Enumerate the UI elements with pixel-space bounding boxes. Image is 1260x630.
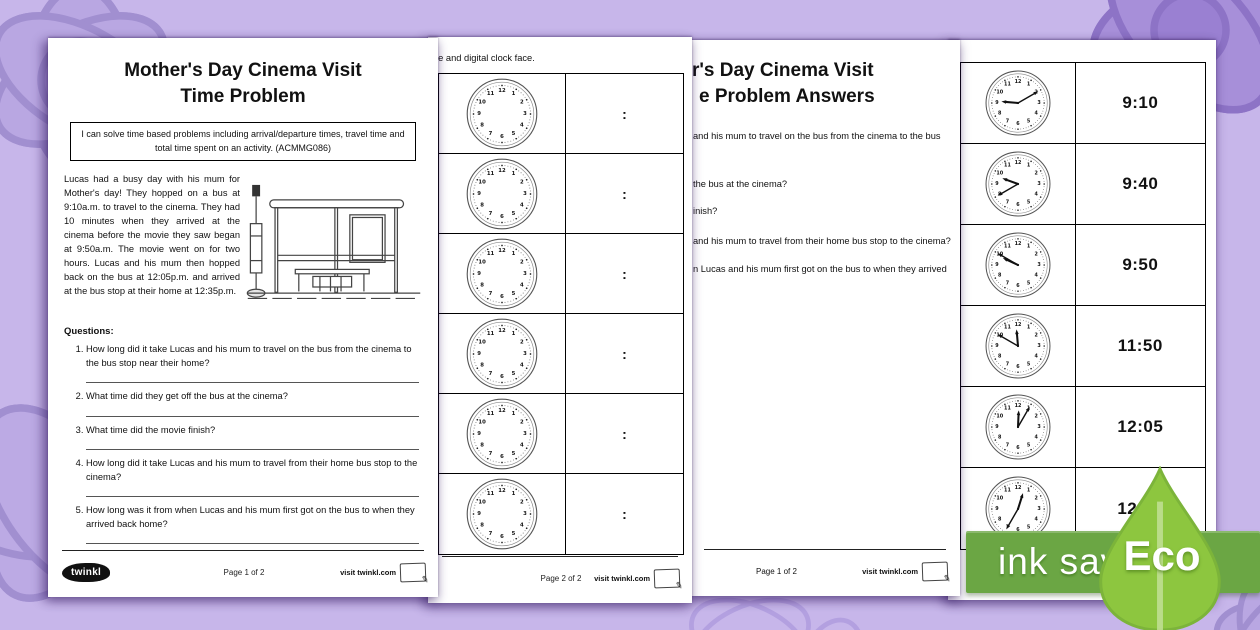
table-row: 123456789101112 9:10 xyxy=(961,63,1205,144)
question-item: How long did it take Lucas and his mum t… xyxy=(86,457,422,497)
svg-text:3: 3 xyxy=(523,351,527,357)
digital-clock-colon: : xyxy=(566,234,683,313)
question-item: How long did it take Lucas and his mum t… xyxy=(86,343,422,383)
svg-text:12: 12 xyxy=(498,408,506,414)
svg-text:12: 12 xyxy=(498,88,506,94)
svg-text:4: 4 xyxy=(1034,111,1038,117)
answer-blank-line[interactable] xyxy=(86,404,419,417)
svg-text:3: 3 xyxy=(523,191,527,197)
svg-text:5: 5 xyxy=(512,370,516,376)
svg-text:1: 1 xyxy=(1027,163,1031,169)
answer-line-fragment: and his mum to travel on the bus from th… xyxy=(693,131,960,141)
table-row: 123456789101112 : xyxy=(439,74,683,154)
svg-text:10: 10 xyxy=(996,89,1003,95)
page-title: Mother's Day Cinema Visit Time Problem xyxy=(64,58,422,110)
svg-text:8: 8 xyxy=(998,435,1002,441)
learning-objective-box: I can solve time based problems includin… xyxy=(70,122,416,161)
svg-text:4: 4 xyxy=(1034,273,1038,279)
blank-analog-clock: 123456789101112 xyxy=(465,317,539,391)
analog-clock: 123456789101112 xyxy=(984,312,1052,380)
svg-text:7: 7 xyxy=(489,130,493,136)
svg-text:4: 4 xyxy=(520,202,524,208)
blank-clock-table: 123456789101112 : 123456789101112 : 1234… xyxy=(438,73,684,555)
answers-text-page: r's Day Cinema Visit e Problem Answers a… xyxy=(690,40,960,596)
svg-text:8: 8 xyxy=(480,122,484,128)
svg-text:8: 8 xyxy=(480,442,484,448)
answer-line-fragment: the bus at the cinema? xyxy=(693,179,960,189)
svg-text:8: 8 xyxy=(480,282,484,288)
svg-text:2: 2 xyxy=(1034,332,1037,338)
svg-text:3: 3 xyxy=(1037,100,1040,106)
page-footer: Page 1 of 2 visit twinkl.com ✎ xyxy=(704,558,948,584)
svg-text:9: 9 xyxy=(995,343,999,349)
page-number: Page 1 of 2 xyxy=(756,567,797,576)
svg-text:11: 11 xyxy=(1004,244,1011,250)
svg-text:3: 3 xyxy=(1037,424,1040,430)
blank-analog-clock: 123456789101112 xyxy=(465,397,539,471)
svg-text:1: 1 xyxy=(512,491,516,497)
answer-line-fragment: inish? xyxy=(693,206,960,216)
svg-text:7: 7 xyxy=(489,370,493,376)
svg-text:5: 5 xyxy=(1027,524,1031,530)
svg-text:4: 4 xyxy=(1034,354,1038,360)
svg-text:5: 5 xyxy=(1027,361,1031,367)
svg-text:11: 11 xyxy=(487,251,495,257)
svg-text:12: 12 xyxy=(1014,322,1021,328)
svg-text:2: 2 xyxy=(1034,495,1037,501)
svg-text:6: 6 xyxy=(500,373,504,379)
svg-text:9: 9 xyxy=(477,351,481,357)
answer-line-fragment: and his mum to travel from their home bu… xyxy=(693,236,960,246)
svg-text:5: 5 xyxy=(512,290,516,296)
analog-clock: 123456789101112 xyxy=(984,393,1052,461)
svg-text:1: 1 xyxy=(1027,487,1031,493)
svg-text:8: 8 xyxy=(998,516,1002,522)
digital-clock-colon: : xyxy=(566,314,683,393)
questions-heading: Questions: xyxy=(64,326,422,337)
table-row: 123456789101112 9:40 xyxy=(961,144,1205,225)
svg-text:10: 10 xyxy=(996,413,1003,419)
visit-link[interactable]: visit twinkl.com xyxy=(862,567,918,576)
svg-text:12: 12 xyxy=(498,488,506,494)
svg-text:2: 2 xyxy=(520,259,524,265)
svg-text:5: 5 xyxy=(512,210,516,216)
svg-text:12: 12 xyxy=(498,328,506,334)
svg-text:11: 11 xyxy=(1004,406,1011,412)
svg-text:12: 12 xyxy=(498,248,506,254)
svg-text:9: 9 xyxy=(995,262,999,268)
svg-text:7: 7 xyxy=(1006,361,1009,367)
svg-text:3: 3 xyxy=(523,431,527,437)
svg-text:10: 10 xyxy=(478,419,486,425)
svg-text:4: 4 xyxy=(1034,435,1038,441)
table-row: 123456789101112 : xyxy=(439,394,683,474)
svg-text:7: 7 xyxy=(1006,442,1009,448)
table-row: 123456789101112 12:05 xyxy=(961,387,1205,468)
footer-divider xyxy=(704,549,946,550)
svg-text:1: 1 xyxy=(1027,325,1031,331)
svg-text:6: 6 xyxy=(1016,445,1020,451)
svg-text:4: 4 xyxy=(520,282,524,288)
question-item: What time did they get off the bus at th… xyxy=(86,390,422,416)
svg-text:9: 9 xyxy=(995,181,999,187)
svg-text:12: 12 xyxy=(1014,241,1021,247)
svg-text:9: 9 xyxy=(477,431,481,437)
svg-text:2: 2 xyxy=(520,99,524,105)
digital-clock-colon: : xyxy=(566,154,683,233)
svg-text:7: 7 xyxy=(489,210,493,216)
svg-text:5: 5 xyxy=(512,130,516,136)
svg-text:10: 10 xyxy=(478,179,486,185)
svg-text:3: 3 xyxy=(523,511,527,517)
svg-text:6: 6 xyxy=(1016,121,1020,127)
digital-time: 9:40 xyxy=(1076,144,1205,224)
svg-text:12: 12 xyxy=(498,168,506,174)
svg-text:3: 3 xyxy=(1037,343,1040,349)
svg-text:11: 11 xyxy=(1004,325,1011,331)
svg-text:9: 9 xyxy=(477,111,481,117)
svg-text:8: 8 xyxy=(998,273,1002,279)
svg-text:4: 4 xyxy=(1034,516,1038,522)
svg-text:4: 4 xyxy=(520,122,524,128)
svg-text:8: 8 xyxy=(998,354,1002,360)
svg-text:5: 5 xyxy=(512,531,516,537)
svg-text:11: 11 xyxy=(1004,163,1011,169)
problem-page: Mother's Day Cinema Visit Time Problem I… xyxy=(48,38,438,597)
page-footer: Page 2 of 2 visit twinkl.com ✎ xyxy=(442,565,680,591)
svg-text:12: 12 xyxy=(1014,160,1021,166)
answer-blank-line[interactable] xyxy=(86,437,419,450)
svg-text:10: 10 xyxy=(478,339,486,345)
svg-text:12: 12 xyxy=(1014,79,1021,85)
visit-link[interactable]: visit twinkl.com xyxy=(340,568,396,577)
visit-link[interactable]: visit twinkl.com xyxy=(594,574,650,583)
svg-text:5: 5 xyxy=(1027,280,1031,286)
svg-text:3: 3 xyxy=(1037,262,1040,268)
svg-text:2: 2 xyxy=(1034,413,1037,419)
svg-text:1: 1 xyxy=(512,411,516,417)
svg-text:11: 11 xyxy=(487,91,495,97)
svg-text:5: 5 xyxy=(1027,118,1031,124)
svg-text:7: 7 xyxy=(1006,199,1009,205)
svg-text:11: 11 xyxy=(1004,82,1011,88)
blank-clocks-page: ue and digital clock face. 1234567891011… xyxy=(428,37,692,603)
instruction-fragment: ue and digital clock face. xyxy=(433,53,535,63)
blank-analog-clock: 123456789101112 xyxy=(465,477,539,551)
svg-text:1: 1 xyxy=(512,91,516,97)
svg-text:2: 2 xyxy=(520,500,524,506)
svg-text:10: 10 xyxy=(478,99,486,105)
svg-text:5: 5 xyxy=(1027,442,1031,448)
eco-label: Eco xyxy=(1102,532,1222,580)
svg-text:9: 9 xyxy=(477,191,481,197)
svg-text:4: 4 xyxy=(520,522,524,528)
svg-text:7: 7 xyxy=(1006,118,1009,124)
svg-text:10: 10 xyxy=(996,495,1003,501)
svg-text:11: 11 xyxy=(487,411,495,417)
svg-text:4: 4 xyxy=(520,442,524,448)
answer-blank-line[interactable] xyxy=(86,484,419,497)
table-row: 123456789101112 9:50 xyxy=(961,225,1205,306)
svg-text:9: 9 xyxy=(477,511,481,517)
digital-time: 9:10 xyxy=(1076,63,1205,143)
svg-text:5: 5 xyxy=(512,450,516,456)
svg-text:6: 6 xyxy=(1016,364,1020,370)
problem-story: Lucas had a busy day with his mum for Mo… xyxy=(64,173,240,316)
blank-analog-clock: 123456789101112 xyxy=(465,237,539,311)
svg-text:6: 6 xyxy=(500,534,504,540)
svg-text:6: 6 xyxy=(500,293,504,299)
svg-text:7: 7 xyxy=(1006,280,1009,286)
svg-text:12: 12 xyxy=(1014,484,1021,490)
table-row: 123456789101112 11:50 xyxy=(961,306,1205,387)
svg-text:7: 7 xyxy=(489,531,493,537)
svg-text:6: 6 xyxy=(1016,283,1020,289)
svg-text:1: 1 xyxy=(512,251,516,257)
svg-text:9: 9 xyxy=(477,271,481,277)
svg-text:8: 8 xyxy=(480,522,484,528)
svg-text:3: 3 xyxy=(523,271,527,277)
svg-text:1: 1 xyxy=(512,331,516,337)
svg-text:7: 7 xyxy=(489,290,493,296)
svg-text:11: 11 xyxy=(487,491,495,497)
svg-text:2: 2 xyxy=(1034,251,1037,257)
analog-clock: 123456789101112 xyxy=(984,231,1052,299)
digital-clock-colon: : xyxy=(566,74,683,153)
svg-text:12: 12 xyxy=(1014,403,1021,409)
digital-clock-colon: : xyxy=(566,394,683,473)
blank-analog-clock: 123456789101112 xyxy=(465,77,539,151)
blank-analog-clock: 123456789101112 xyxy=(465,157,539,231)
svg-text:1: 1 xyxy=(1027,82,1031,88)
svg-text:2: 2 xyxy=(1034,170,1037,176)
table-row: 123456789101112 : xyxy=(439,234,683,314)
svg-text:11: 11 xyxy=(1004,487,1011,493)
questions-list: How long did it take Lucas and his mum t… xyxy=(86,343,422,544)
svg-text:11: 11 xyxy=(487,171,495,177)
svg-text:6: 6 xyxy=(500,213,504,219)
question-item: What time did the movie finish? xyxy=(86,424,422,450)
table-row: 123456789101112 : xyxy=(439,154,683,234)
table-row: 123456789101112 : xyxy=(439,474,683,554)
twinkl-stamp-icon: ✎ xyxy=(400,562,427,582)
digital-clock-colon: : xyxy=(566,474,683,554)
twinkl-stamp-icon: ✎ xyxy=(654,568,681,588)
svg-text:3: 3 xyxy=(1037,506,1040,512)
answer-line-fragment: n Lucas and his mum first got on the bus… xyxy=(693,264,960,274)
answers-page-title: r's Day Cinema Visit e Problem Answers xyxy=(692,58,875,110)
answer-blank-line[interactable] xyxy=(86,370,419,383)
footer-divider xyxy=(442,556,678,557)
analog-clock: 123456789101112 xyxy=(984,150,1052,218)
svg-text:8: 8 xyxy=(480,362,484,368)
svg-text:2: 2 xyxy=(520,339,524,345)
twinkl-stamp-icon: ✎ xyxy=(922,561,949,581)
svg-text:8: 8 xyxy=(998,111,1002,117)
svg-text:5: 5 xyxy=(1027,199,1031,205)
digital-time: 9:50 xyxy=(1076,225,1205,305)
svg-text:9: 9 xyxy=(995,424,999,430)
svg-text:10: 10 xyxy=(478,259,486,265)
svg-text:3: 3 xyxy=(523,111,527,117)
svg-text:3: 3 xyxy=(1037,181,1040,187)
page-footer: twinkl Page 1 of 2 visit twinkl.com ✎ xyxy=(62,559,426,585)
svg-text:10: 10 xyxy=(478,500,486,506)
svg-text:6: 6 xyxy=(500,453,504,459)
svg-text:4: 4 xyxy=(1034,192,1038,198)
svg-text:10: 10 xyxy=(996,170,1003,176)
svg-text:8: 8 xyxy=(480,202,484,208)
svg-text:7: 7 xyxy=(489,450,493,456)
answer-blank-line[interactable] xyxy=(86,531,419,544)
footer-divider xyxy=(62,550,424,551)
svg-text:6: 6 xyxy=(500,133,504,139)
svg-text:1: 1 xyxy=(1027,244,1031,250)
svg-text:1: 1 xyxy=(512,171,516,177)
svg-text:4: 4 xyxy=(520,362,524,368)
svg-text:2: 2 xyxy=(520,419,524,425)
question-item: How long was it from when Lucas and his … xyxy=(86,504,422,544)
bus-stop-illustration xyxy=(246,175,422,316)
svg-text:9: 9 xyxy=(995,506,999,512)
svg-text:9: 9 xyxy=(995,100,999,106)
svg-text:6: 6 xyxy=(1016,202,1020,208)
svg-text:11: 11 xyxy=(487,331,495,337)
analog-clock: 123456789101112 xyxy=(984,69,1052,137)
digital-time: 12:05 xyxy=(1076,387,1205,467)
digital-time: 11:50 xyxy=(1076,306,1205,386)
table-row: 123456789101112 : xyxy=(439,314,683,394)
svg-text:2: 2 xyxy=(520,179,524,185)
